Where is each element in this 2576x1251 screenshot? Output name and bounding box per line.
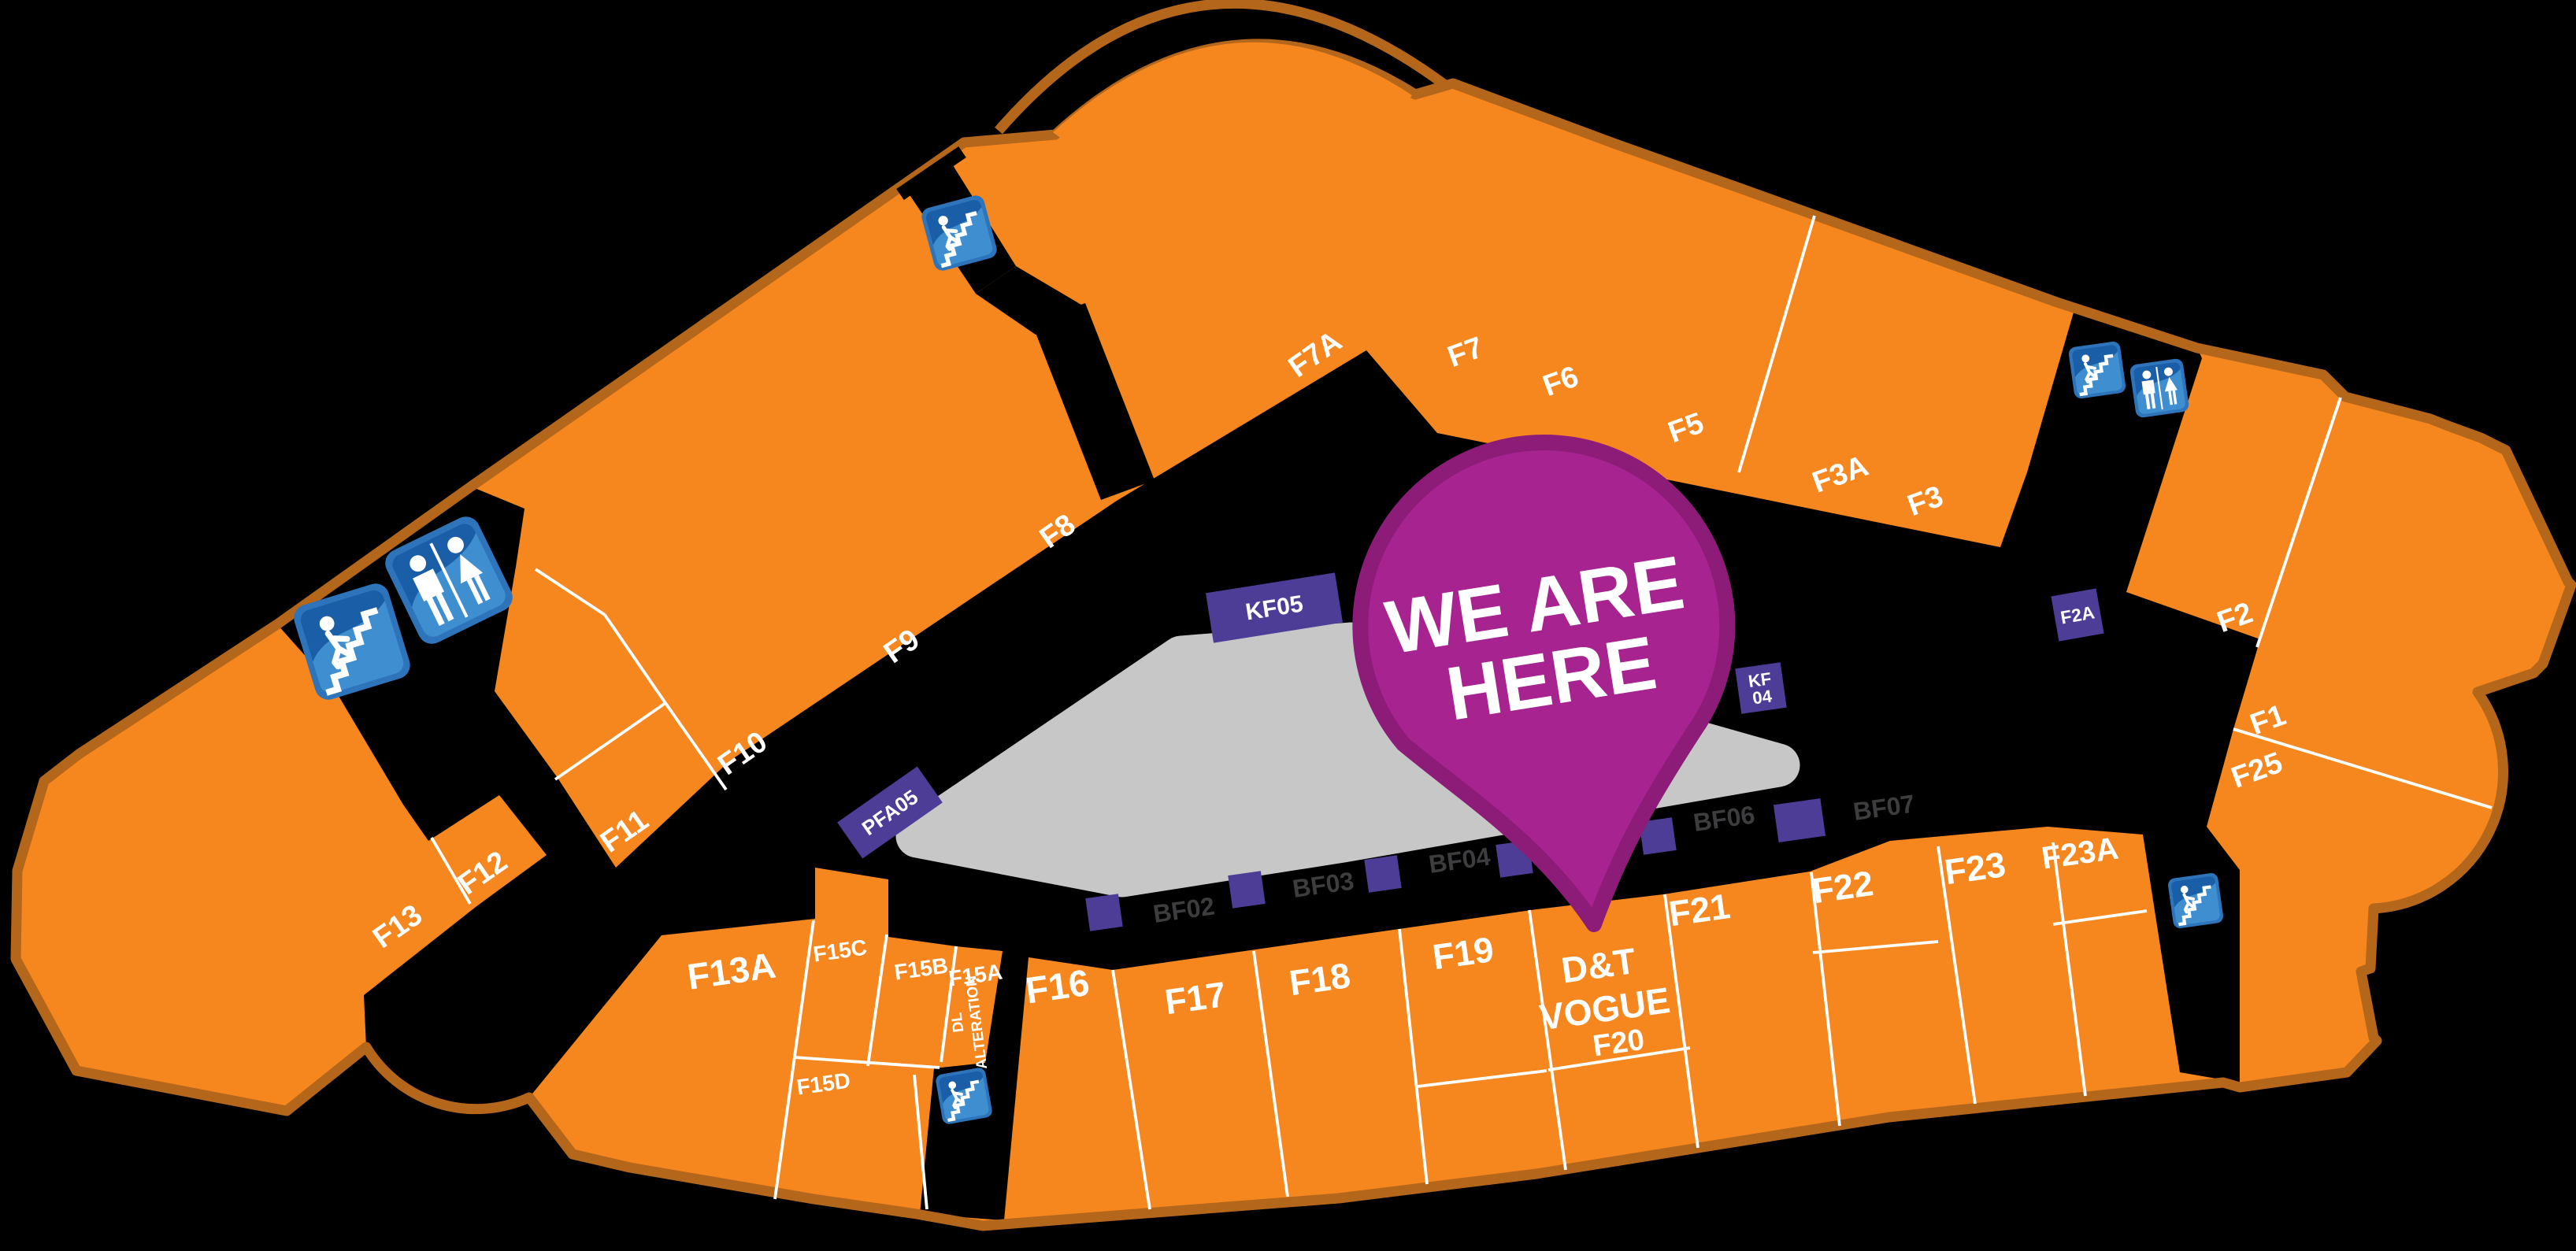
svg-text:04: 04 — [1751, 686, 1774, 708]
svg-text:F18: F18 — [1287, 955, 1353, 1003]
svg-text:F16: F16 — [1023, 961, 1092, 1012]
svg-text:DL: DL — [949, 1011, 968, 1033]
svg-text:F22: F22 — [1810, 863, 1876, 911]
svg-text:F21: F21 — [1666, 886, 1733, 934]
svg-text:F19: F19 — [1430, 929, 1496, 977]
svg-text:F17: F17 — [1162, 974, 1229, 1022]
svg-text:F23: F23 — [1942, 844, 2008, 892]
